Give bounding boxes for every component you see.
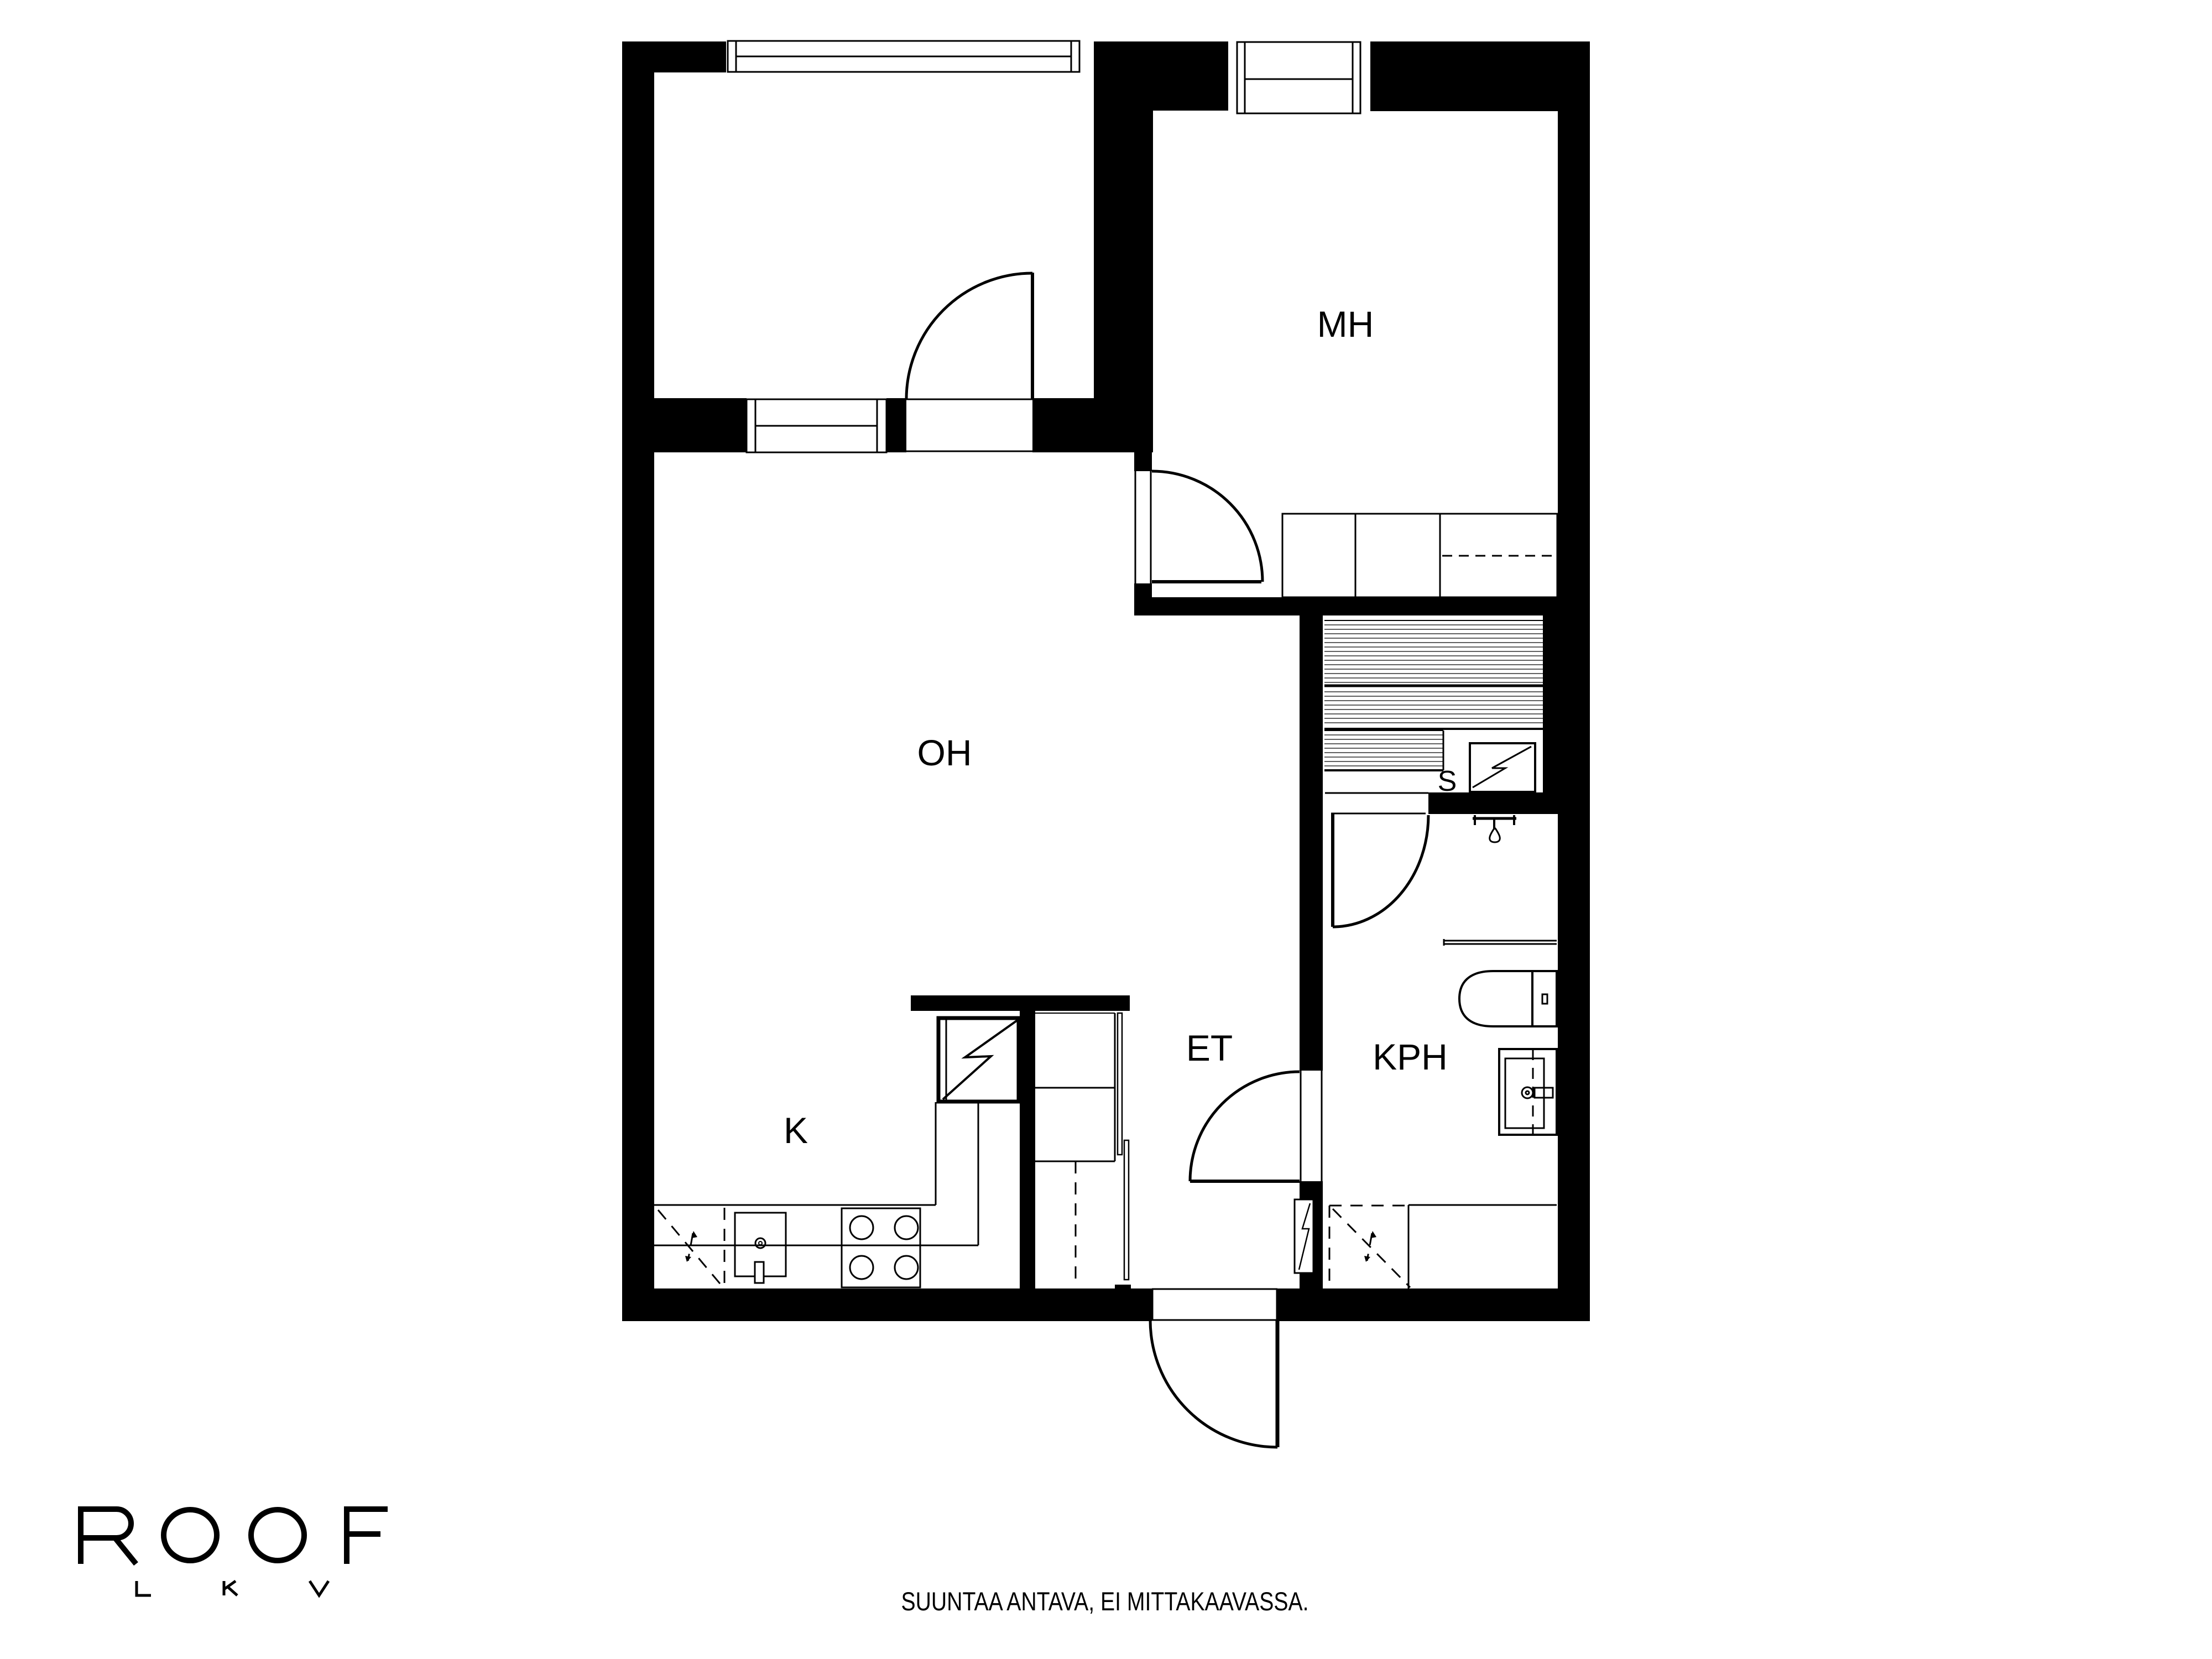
svg-text:SUUNTAA ANTAVA, EI MITTAKAAVAS: SUUNTAA ANTAVA, EI MITTAKAAVASSA. (901, 1587, 1309, 1616)
svg-text:OH: OH (917, 732, 972, 773)
svg-text:KPH: KPH (1373, 1036, 1448, 1077)
svg-text:ET: ET (1186, 1027, 1233, 1068)
svg-text:K: K (784, 1110, 808, 1151)
svg-text:MH: MH (1317, 304, 1374, 345)
svg-text:S: S (1438, 765, 1457, 797)
